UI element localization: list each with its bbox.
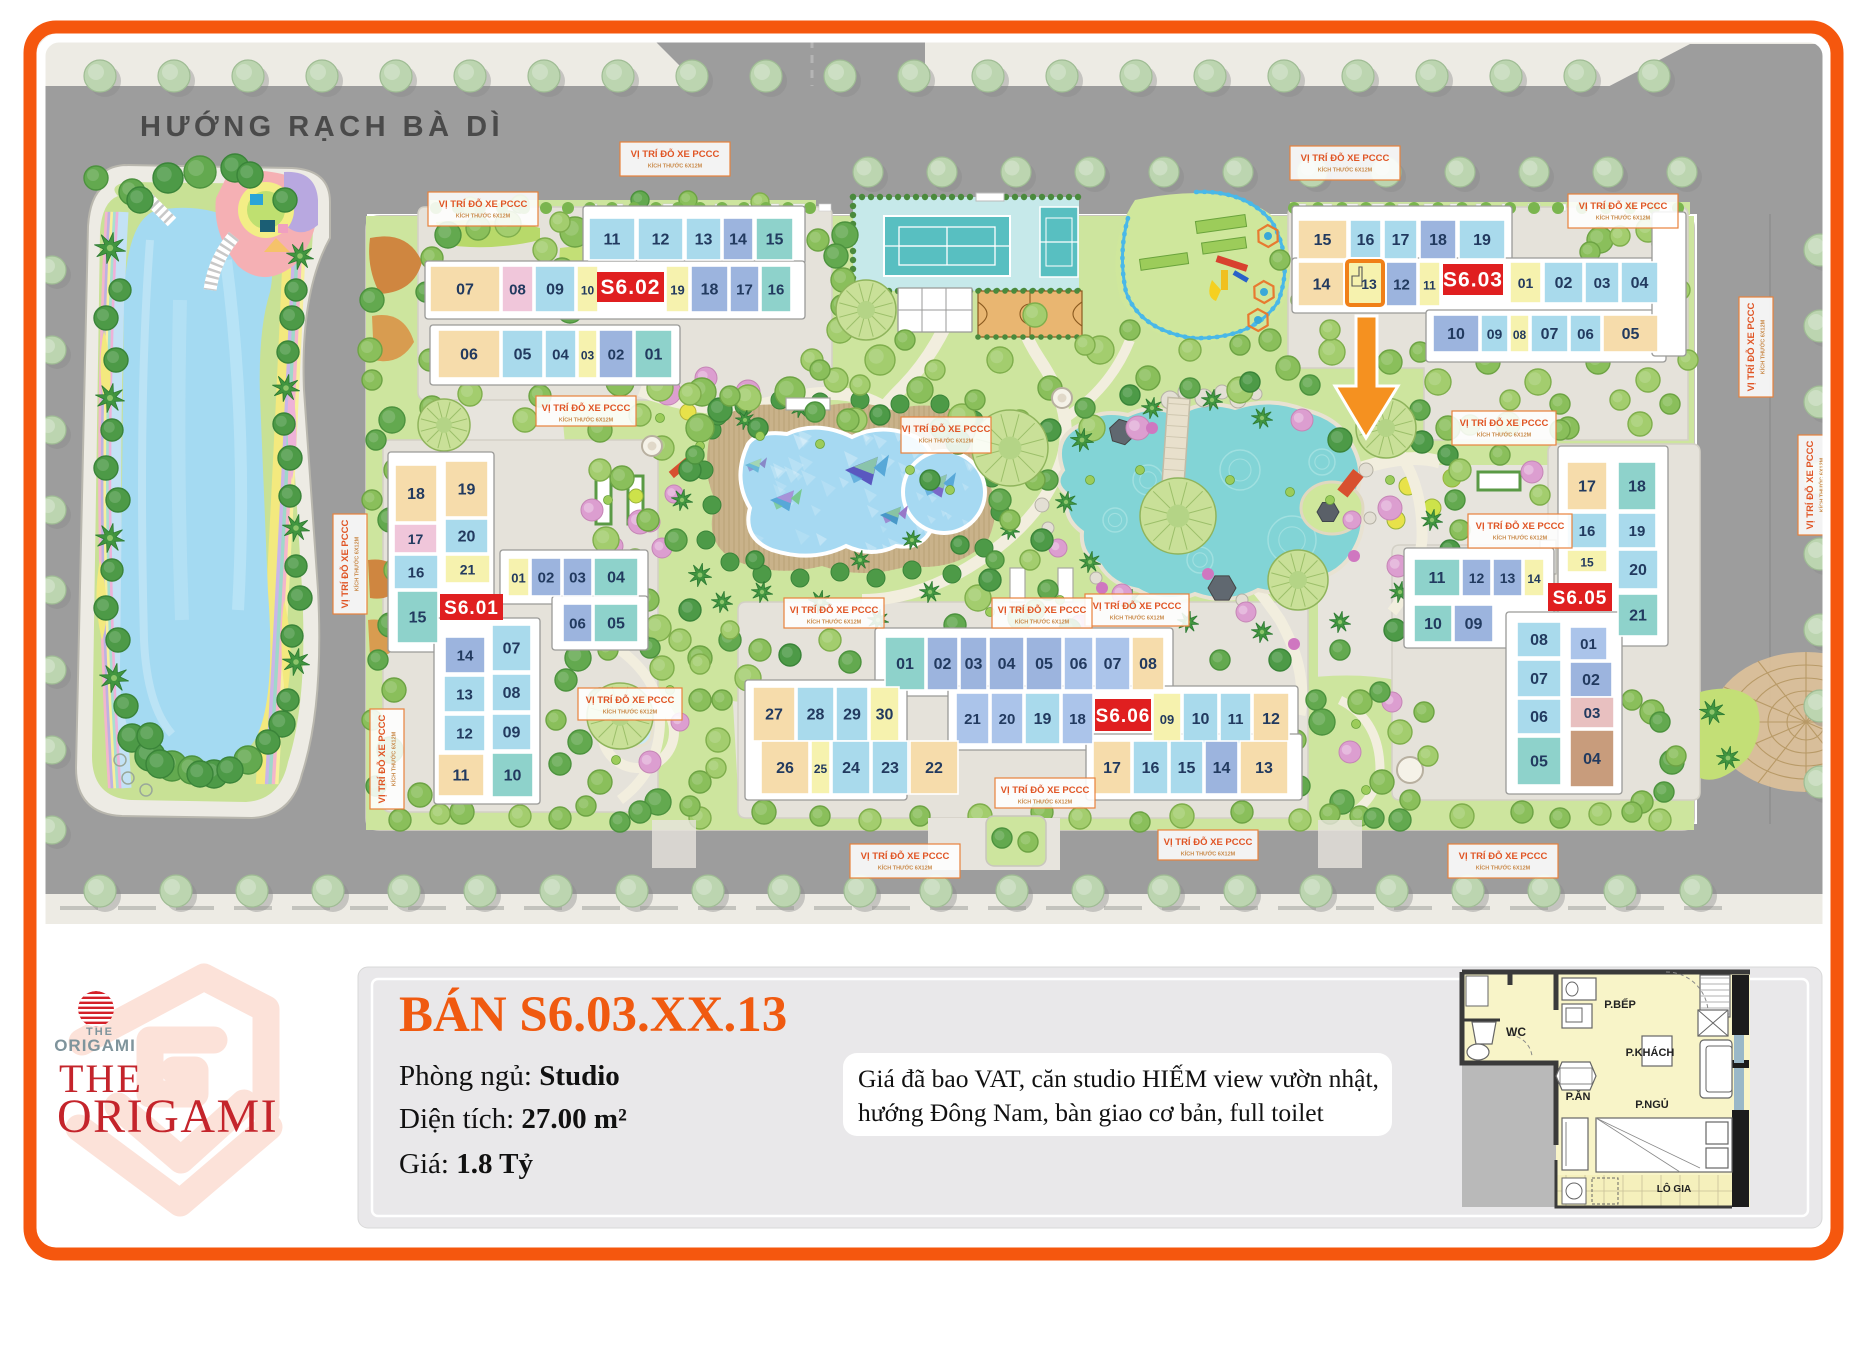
svg-text:17: 17 bbox=[1103, 760, 1121, 777]
svg-text:27: 27 bbox=[765, 707, 783, 724]
svg-text:06: 06 bbox=[460, 347, 478, 364]
svg-text:VỊ TRÍ ĐỖ XE PCCC: VỊ TRÍ ĐỖ XE PCCC bbox=[861, 850, 950, 862]
svg-text:11: 11 bbox=[1429, 570, 1446, 587]
svg-text:ORIGAMI: ORIGAMI bbox=[57, 1090, 278, 1143]
svg-text:07: 07 bbox=[1530, 671, 1548, 688]
svg-text:14: 14 bbox=[457, 648, 474, 665]
svg-text:15: 15 bbox=[1580, 556, 1594, 570]
svg-text:07: 07 bbox=[503, 641, 521, 658]
svg-text:VỊ TRÍ ĐỖ XE PCCC: VỊ TRÍ ĐỖ XE PCCC bbox=[790, 604, 879, 616]
svg-text:08: 08 bbox=[1530, 632, 1548, 649]
svg-text:08: 08 bbox=[503, 685, 521, 702]
svg-text:15: 15 bbox=[409, 610, 427, 627]
svg-text:LÔ GIA: LÔ GIA bbox=[1657, 1182, 1691, 1195]
svg-text:14: 14 bbox=[1313, 277, 1331, 294]
svg-text:01: 01 bbox=[896, 656, 914, 673]
svg-text:VỊ TRÍ ĐỖ XE PCCC: VỊ TRÍ ĐỖ XE PCCC bbox=[542, 402, 631, 414]
svg-text:04: 04 bbox=[1631, 275, 1649, 292]
svg-text:VỊ TRÍ ĐỖ XE PCCC: VỊ TRÍ ĐỖ XE PCCC bbox=[1301, 152, 1390, 164]
svg-text:VỊ TRÍ ĐỖ XE PCCC: VỊ TRÍ ĐỖ XE PCCC bbox=[1476, 520, 1565, 532]
svg-text:26: 26 bbox=[776, 760, 794, 777]
svg-text:20: 20 bbox=[999, 711, 1016, 728]
svg-text:05: 05 bbox=[514, 347, 532, 364]
svg-text:P.ĂN: P.ĂN bbox=[1566, 1090, 1591, 1103]
svg-text:06: 06 bbox=[569, 616, 586, 633]
svg-text:BÁN S6.03.XX.13: BÁN S6.03.XX.13 bbox=[399, 987, 787, 1043]
svg-text:07: 07 bbox=[456, 282, 474, 299]
svg-text:18: 18 bbox=[701, 282, 719, 299]
svg-text:KÍCH THƯỚC 6X12M: KÍCH THƯỚC 6X12M bbox=[1018, 798, 1073, 806]
svg-text:12: 12 bbox=[1262, 711, 1280, 728]
svg-text:KÍCH THƯỚC 6X12M: KÍCH THƯỚC 6X12M bbox=[1181, 850, 1236, 858]
svg-text:VỊ TRÍ ĐỖ XE PCCC: VỊ TRÍ ĐỖ XE PCCC bbox=[1001, 784, 1090, 796]
svg-text:05: 05 bbox=[1035, 656, 1053, 673]
svg-text:10: 10 bbox=[581, 284, 595, 298]
svg-text:13: 13 bbox=[1500, 570, 1516, 586]
svg-text:hướng Đông Nam, bàn giao cơ bả: hướng Đông Nam, bàn giao cơ bản, full to… bbox=[858, 1098, 1324, 1127]
svg-text:S6.02: S6.02 bbox=[601, 276, 661, 299]
svg-text:04: 04 bbox=[1583, 751, 1601, 768]
svg-text:08: 08 bbox=[1513, 328, 1527, 342]
svg-text:13: 13 bbox=[695, 232, 713, 249]
svg-text:09: 09 bbox=[546, 282, 564, 299]
svg-text:P.NGỦ: P.NGỦ bbox=[1635, 1098, 1668, 1111]
svg-text:09: 09 bbox=[1487, 326, 1503, 342]
svg-text:KÍCH THƯỚC 6X12M: KÍCH THƯỚC 6X12M bbox=[807, 618, 862, 626]
svg-text:23: 23 bbox=[881, 760, 899, 777]
svg-text:P.KHÁCH: P.KHÁCH bbox=[1626, 1046, 1675, 1059]
svg-text:Giá: 1.8 Tỷ: Giá: 1.8 Tỷ bbox=[399, 1148, 534, 1180]
svg-text:14: 14 bbox=[729, 232, 747, 249]
svg-text:VỊ TRÍ ĐỖ XE PCCC: VỊ TRÍ ĐỖ XE PCCC bbox=[631, 148, 720, 160]
svg-text:18: 18 bbox=[1429, 232, 1447, 249]
svg-text:20: 20 bbox=[458, 529, 476, 546]
svg-text:16: 16 bbox=[1357, 232, 1375, 249]
svg-text:17: 17 bbox=[1392, 232, 1410, 249]
svg-text:03: 03 bbox=[1584, 705, 1601, 722]
svg-text:29: 29 bbox=[843, 707, 861, 724]
svg-text:06: 06 bbox=[1070, 656, 1088, 673]
svg-text:KÍCH THƯỚC 6X12M: KÍCH THƯỚC 6X12M bbox=[603, 708, 658, 716]
svg-text:S6.03: S6.03 bbox=[1443, 269, 1503, 292]
svg-text:07: 07 bbox=[1104, 656, 1122, 673]
svg-text:02: 02 bbox=[1582, 672, 1600, 689]
svg-text:18: 18 bbox=[1628, 479, 1646, 496]
svg-text:21: 21 bbox=[964, 711, 981, 728]
svg-text:21: 21 bbox=[1629, 608, 1647, 625]
svg-text:KÍCH THƯỚC 6X12M: KÍCH THƯỚC 6X12M bbox=[456, 212, 511, 220]
svg-text:24: 24 bbox=[842, 760, 860, 777]
svg-text:KÍCH THƯỚC 6X12M: KÍCH THƯỚC 6X12M bbox=[1596, 214, 1651, 222]
svg-text:Giá đã bao VAT, căn studio HIẾ: Giá đã bao VAT, căn studio HIẾM view vườ… bbox=[858, 1064, 1379, 1093]
svg-text:03: 03 bbox=[965, 656, 983, 673]
svg-text:03: 03 bbox=[569, 570, 586, 587]
svg-text:KÍCH THƯỚC 6X12M: KÍCH THƯỚC 6X12M bbox=[1015, 618, 1070, 626]
svg-text:19: 19 bbox=[458, 482, 476, 499]
svg-text:11: 11 bbox=[604, 232, 621, 249]
svg-text:Phòng ngủ: Studio: Phòng ngủ: Studio bbox=[399, 1060, 620, 1092]
svg-text:03: 03 bbox=[1594, 275, 1611, 292]
svg-text:15: 15 bbox=[1314, 232, 1332, 249]
svg-text:08: 08 bbox=[509, 282, 526, 299]
svg-text:18: 18 bbox=[1069, 711, 1086, 728]
svg-text:13: 13 bbox=[1255, 760, 1273, 777]
svg-text:12: 12 bbox=[1393, 277, 1410, 294]
svg-text:KÍCH THƯỚC 6X12M: KÍCH THƯỚC 6X12M bbox=[648, 162, 703, 170]
svg-text:VỊ TRÍ ĐỖ XE PCCC: VỊ TRÍ ĐỖ XE PCCC bbox=[1460, 417, 1549, 429]
svg-text:02: 02 bbox=[538, 570, 555, 587]
svg-text:HƯỚNG RẠCH BÀ DÌ: HƯỚNG RẠCH BÀ DÌ bbox=[140, 109, 504, 143]
svg-text:20: 20 bbox=[1629, 562, 1647, 579]
svg-text:16: 16 bbox=[768, 282, 785, 299]
svg-text:18: 18 bbox=[407, 486, 425, 503]
svg-text:06: 06 bbox=[1530, 709, 1548, 726]
svg-text:11: 11 bbox=[453, 768, 470, 785]
svg-text:VỊ TRÍ ĐỖ XE PCCC: VỊ TRÍ ĐỖ XE PCCC bbox=[902, 423, 991, 435]
svg-text:25: 25 bbox=[814, 762, 828, 776]
svg-text:21: 21 bbox=[460, 562, 476, 578]
svg-text:S6.06: S6.06 bbox=[1096, 706, 1151, 727]
svg-text:19: 19 bbox=[1629, 523, 1646, 540]
svg-text:03: 03 bbox=[581, 349, 595, 363]
svg-text:10: 10 bbox=[1447, 326, 1465, 343]
svg-text:01: 01 bbox=[1580, 636, 1597, 653]
svg-text:VỊ TRÍ ĐỖ XE PCCC: VỊ TRÍ ĐỖ XE PCCC bbox=[1459, 850, 1548, 862]
svg-text:KÍCH THƯỚC 6X12M: KÍCH THƯỚC 6X12M bbox=[1477, 431, 1532, 439]
svg-text:VỊ TRÍ ĐỖ XE PCCC: VỊ TRÍ ĐỖ XE PCCC bbox=[376, 715, 388, 804]
svg-text:05: 05 bbox=[1622, 326, 1640, 343]
svg-text:09: 09 bbox=[1465, 616, 1483, 633]
svg-text:VỊ TRÍ ĐỖ XE PCCC: VỊ TRÍ ĐỖ XE PCCC bbox=[998, 604, 1087, 616]
svg-text:14: 14 bbox=[1213, 760, 1231, 777]
svg-text:15: 15 bbox=[766, 232, 784, 249]
svg-text:P.BẾP: P.BẾP bbox=[1604, 998, 1636, 1011]
svg-text:KÍCH THƯỚC 6X12M: KÍCH THƯỚC 6X12M bbox=[1476, 864, 1531, 872]
svg-text:KÍCH THƯỚC 6X12M: KÍCH THƯỚC 6X12M bbox=[1493, 534, 1548, 542]
svg-text:08: 08 bbox=[1139, 656, 1157, 673]
svg-text:12: 12 bbox=[456, 726, 473, 743]
svg-text:17: 17 bbox=[1578, 479, 1596, 496]
svg-text:VỊ TRÍ ĐỖ XE PCCC: VỊ TRÍ ĐỖ XE PCCC bbox=[1745, 303, 1757, 392]
svg-text:10: 10 bbox=[1192, 711, 1210, 728]
svg-text:10: 10 bbox=[504, 768, 522, 785]
svg-text:30: 30 bbox=[876, 707, 894, 724]
svg-text:VỊ TRÍ ĐỖ XE PCCC: VỊ TRÍ ĐỖ XE PCCC bbox=[1093, 600, 1182, 612]
svg-text:05: 05 bbox=[607, 616, 625, 633]
svg-text:KÍCH THƯỚC 6X12M: KÍCH THƯỚC 6X12M bbox=[878, 864, 933, 872]
svg-text:15: 15 bbox=[1178, 760, 1196, 777]
svg-text:VỊ TRÍ ĐỖ XE PCCC: VỊ TRÍ ĐỖ XE PCCC bbox=[339, 520, 351, 609]
svg-text:16: 16 bbox=[1142, 760, 1160, 777]
svg-text:02: 02 bbox=[608, 347, 625, 364]
svg-text:09: 09 bbox=[1160, 712, 1174, 727]
svg-text:VỊ TRÍ ĐỖ XE PCCC: VỊ TRÍ ĐỖ XE PCCC bbox=[1164, 836, 1253, 848]
svg-text:11: 11 bbox=[1423, 279, 1436, 293]
svg-text:01: 01 bbox=[1518, 275, 1534, 291]
svg-text:S6.01: S6.01 bbox=[444, 598, 499, 619]
svg-text:12: 12 bbox=[1469, 570, 1485, 586]
svg-text:KÍCH THƯỚC 6X12M: KÍCH THƯỚC 6X12M bbox=[390, 731, 398, 786]
svg-text:KÍCH THƯỚC 6X12M: KÍCH THƯỚC 6X12M bbox=[919, 437, 974, 445]
svg-text:ORIGAMI: ORIGAMI bbox=[54, 1036, 136, 1055]
svg-text:16: 16 bbox=[408, 565, 425, 582]
svg-text:VỊ TRÍ ĐỖ XE PCCC: VỊ TRÍ ĐỖ XE PCCC bbox=[1804, 441, 1816, 530]
svg-text:WC: WC bbox=[1506, 1025, 1526, 1039]
svg-text:07: 07 bbox=[1541, 326, 1559, 343]
svg-text:VỊ TRÍ ĐỖ XE PCCC: VỊ TRÍ ĐỖ XE PCCC bbox=[586, 694, 675, 706]
svg-text:KÍCH THƯỚC 6X12M: KÍCH THƯỚC 6X12M bbox=[353, 536, 361, 591]
svg-text:01: 01 bbox=[511, 571, 525, 586]
svg-text:04: 04 bbox=[607, 570, 625, 587]
svg-text:05: 05 bbox=[1530, 754, 1548, 771]
svg-text:KÍCH THƯỚC 6X12M: KÍCH THƯỚC 6X12M bbox=[1110, 614, 1165, 622]
svg-text:VỊ TRÍ ĐỖ XE PCCC: VỊ TRÍ ĐỖ XE PCCC bbox=[1579, 200, 1668, 212]
svg-text:13: 13 bbox=[1361, 276, 1377, 292]
svg-text:19: 19 bbox=[1034, 711, 1052, 728]
svg-text:16: 16 bbox=[1579, 523, 1596, 540]
svg-text:13: 13 bbox=[456, 687, 473, 704]
svg-text:10: 10 bbox=[1424, 616, 1442, 633]
svg-text:02: 02 bbox=[1555, 275, 1573, 292]
svg-text:28: 28 bbox=[807, 707, 825, 724]
svg-text:17: 17 bbox=[736, 282, 753, 299]
svg-text:VỊ TRÍ ĐỖ XE PCCC: VỊ TRÍ ĐỖ XE PCCC bbox=[439, 198, 528, 210]
svg-text:11: 11 bbox=[1228, 711, 1244, 728]
svg-text:KÍCH THƯỚC 6X12M: KÍCH THƯỚC 6X12M bbox=[1759, 319, 1767, 374]
svg-text:04: 04 bbox=[998, 656, 1016, 673]
svg-text:02: 02 bbox=[934, 656, 952, 673]
svg-text:06: 06 bbox=[1577, 326, 1594, 343]
svg-text:19: 19 bbox=[670, 283, 684, 298]
svg-text:12: 12 bbox=[652, 232, 670, 249]
svg-text:09: 09 bbox=[503, 725, 521, 742]
svg-text:KÍCH THƯỚC 6X12M: KÍCH THƯỚC 6X12M bbox=[1318, 166, 1373, 174]
svg-text:KÍCH THƯỚC 6X12M: KÍCH THƯỚC 6X12M bbox=[559, 416, 614, 424]
svg-text:17: 17 bbox=[408, 531, 424, 547]
svg-text:S6.05: S6.05 bbox=[1553, 588, 1608, 609]
svg-text:14: 14 bbox=[1527, 572, 1541, 586]
svg-text:01: 01 bbox=[645, 347, 663, 364]
svg-text:22: 22 bbox=[925, 760, 943, 777]
svg-text:04: 04 bbox=[552, 347, 569, 364]
svg-text:Diện tích: 27.00 m²: Diện tích: 27.00 m² bbox=[399, 1103, 627, 1135]
svg-text:19: 19 bbox=[1473, 232, 1491, 249]
